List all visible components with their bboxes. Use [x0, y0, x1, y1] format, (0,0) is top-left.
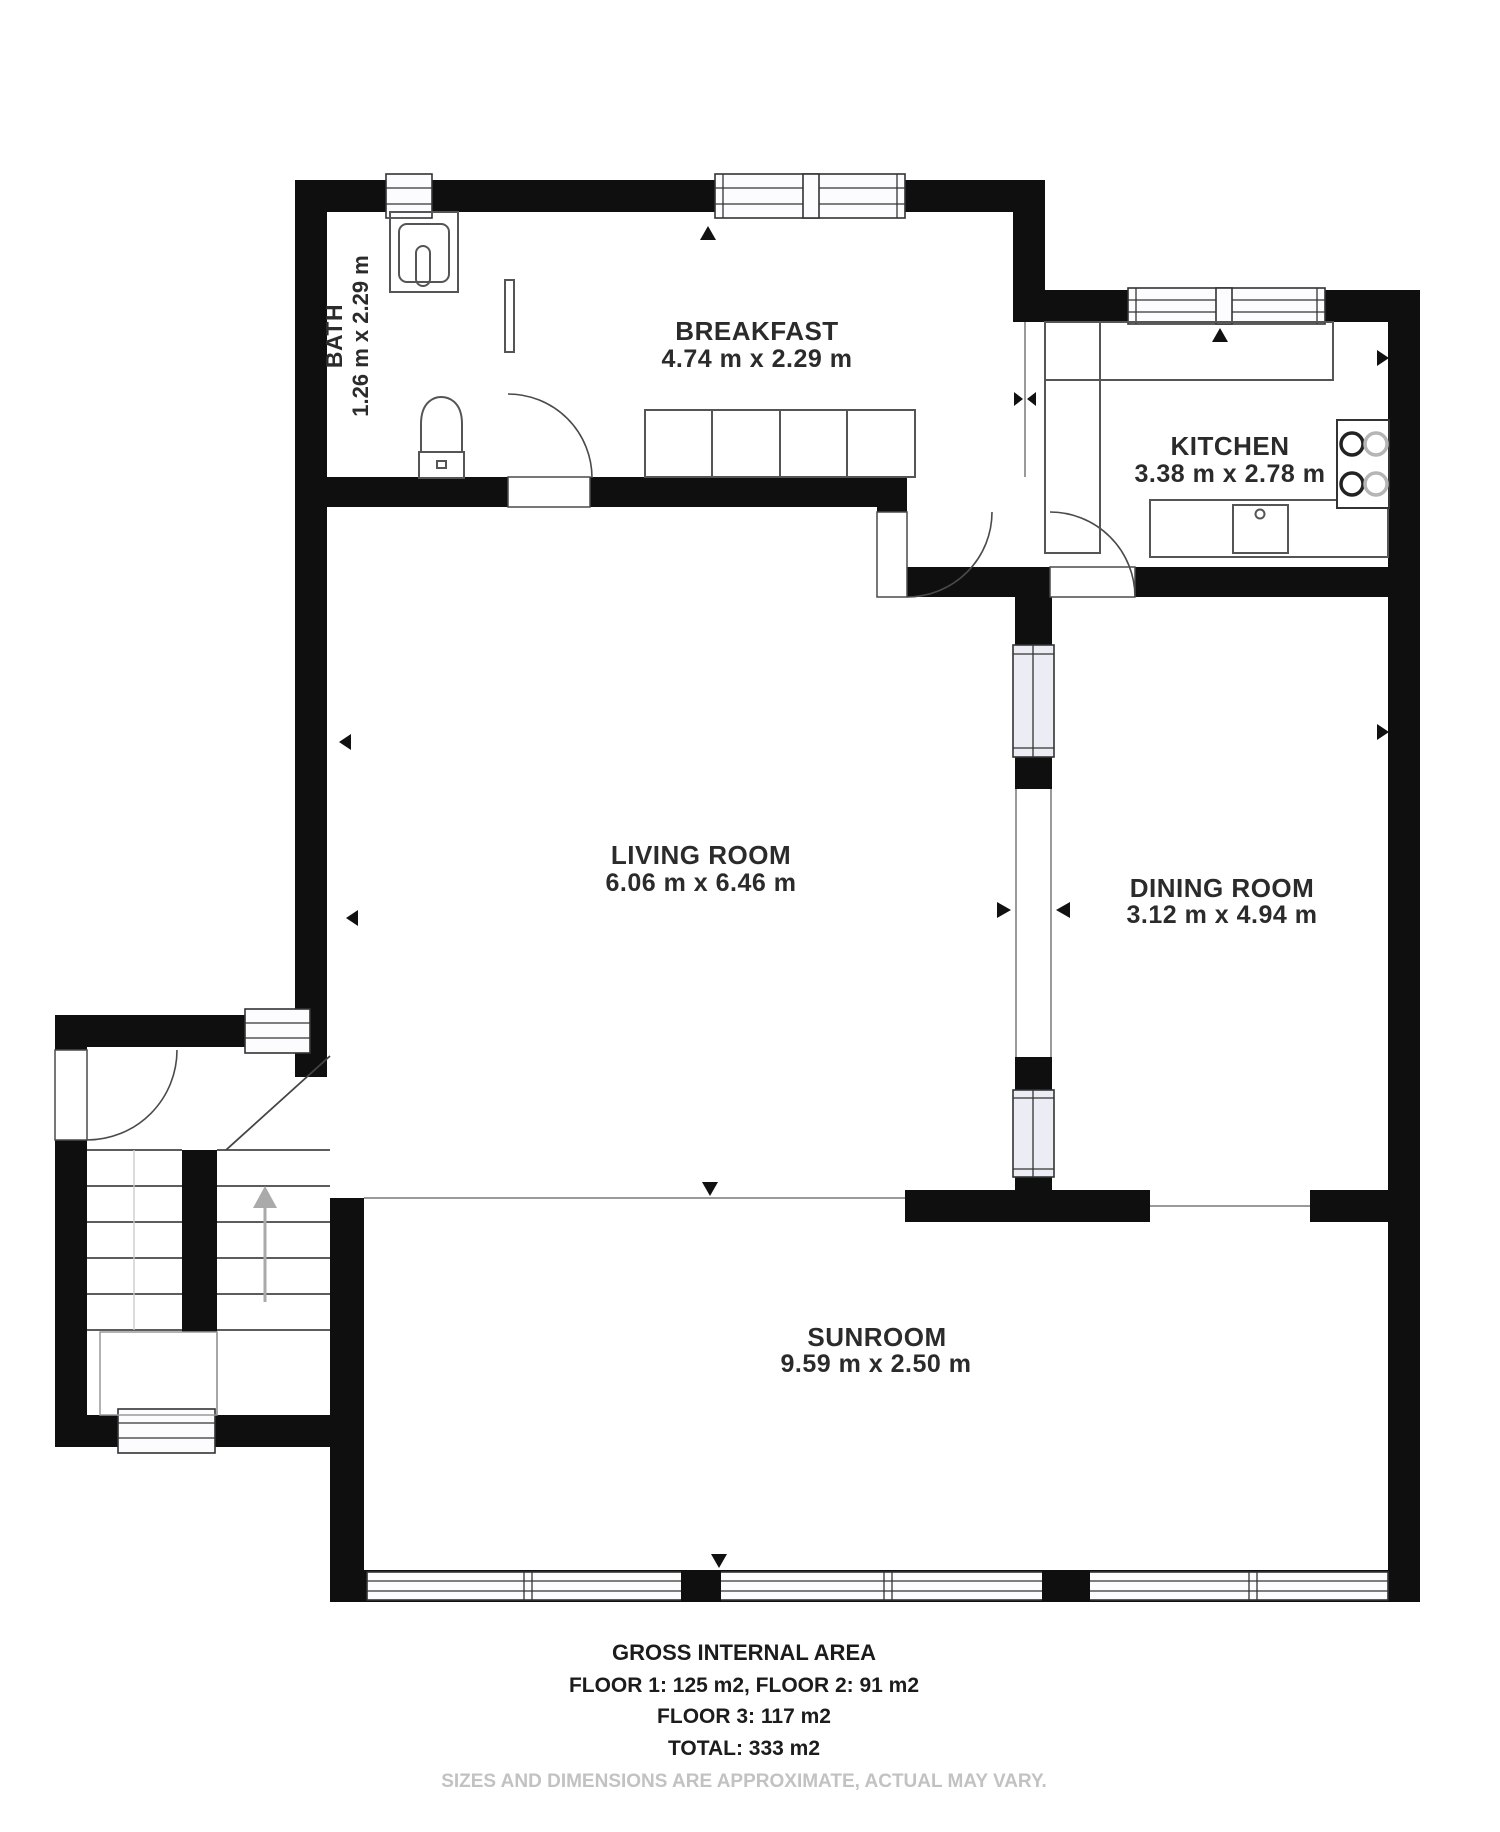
door-bath-breakfast	[500, 280, 514, 385]
window-post	[1042, 1570, 1090, 1602]
stair-up-arrow	[253, 1186, 277, 1302]
dining-name: DINING ROOM	[1130, 873, 1315, 903]
bath-name: BATH	[321, 304, 347, 368]
floor-areas-line2: FLOOR 3: 117 m2	[657, 1705, 831, 1728]
interior-window-upper	[1013, 645, 1054, 757]
interior-window-lower	[1013, 1090, 1054, 1177]
sunroom-dims: 9.59 m x 2.50 m	[781, 1350, 972, 1378]
room-sunroom-label: SUNROOM 9.59 m x 2.50 m	[781, 1322, 972, 1378]
kitchen-sink	[1233, 505, 1288, 553]
toilet	[419, 397, 464, 478]
breakfast-name: BREAKFAST	[675, 316, 838, 346]
living-name: LIVING ROOM	[611, 840, 791, 870]
breakfast-dims: 4.74 m x 2.29 m	[662, 345, 853, 373]
floor-areas-line1: FLOOR 1: 125 m2, FLOOR 2: 91 m2	[569, 1674, 919, 1697]
bath-dims: 1.26 m x 2.29 m	[348, 255, 373, 416]
kitchen-name: KITCHEN	[1170, 431, 1289, 461]
living-dims: 6.06 m x 6.46 m	[606, 869, 797, 897]
entry-top-window	[245, 1009, 310, 1053]
floor-plan: BATH 1.26 m x 2.29 m BREAKFAST 4.74 m x …	[0, 0, 1500, 1832]
stove	[1337, 420, 1389, 508]
entry-door	[55, 1050, 177, 1140]
sunroom-name: SUNROOM	[807, 1322, 946, 1352]
total-area: TOTAL: 333 m2	[668, 1737, 820, 1760]
window-post	[681, 1570, 721, 1602]
dining-dims: 3.12 m x 4.94 m	[1127, 901, 1318, 929]
room-bath-label: BATH 1.26 m x 2.29 m	[321, 255, 373, 416]
gross-internal-area-title: GROSS INTERNAL AREA	[612, 1640, 876, 1665]
disclaimer: SIZES AND DIMENSIONS ARE APPROXIMATE, AC…	[441, 1771, 1047, 1792]
footer: GROSS INTERNAL AREA FLOOR 1: 125 m2, FLO…	[441, 1640, 1047, 1792]
room-living-label: LIVING ROOM 6.06 m x 6.46 m	[606, 840, 797, 897]
under-stair-line	[226, 1056, 330, 1150]
door-breakfast-living	[508, 394, 592, 507]
sunroom-window-band	[367, 1570, 1388, 1602]
room-breakfast-label: BREAKFAST 4.74 m x 2.29 m	[662, 316, 853, 373]
room-kitchen-label: KITCHEN 3.38 m x 2.78 m	[1135, 431, 1326, 488]
room-dining-label: DINING ROOM 3.12 m x 4.94 m	[1127, 873, 1318, 929]
door-kitchen-dining	[1050, 512, 1135, 597]
breakfast-window	[715, 174, 905, 218]
breakfast-counter	[645, 410, 915, 477]
shower	[390, 212, 458, 292]
kitchen-window	[1128, 288, 1325, 324]
kitchen-dims: 3.38 m x 2.78 m	[1135, 460, 1326, 488]
